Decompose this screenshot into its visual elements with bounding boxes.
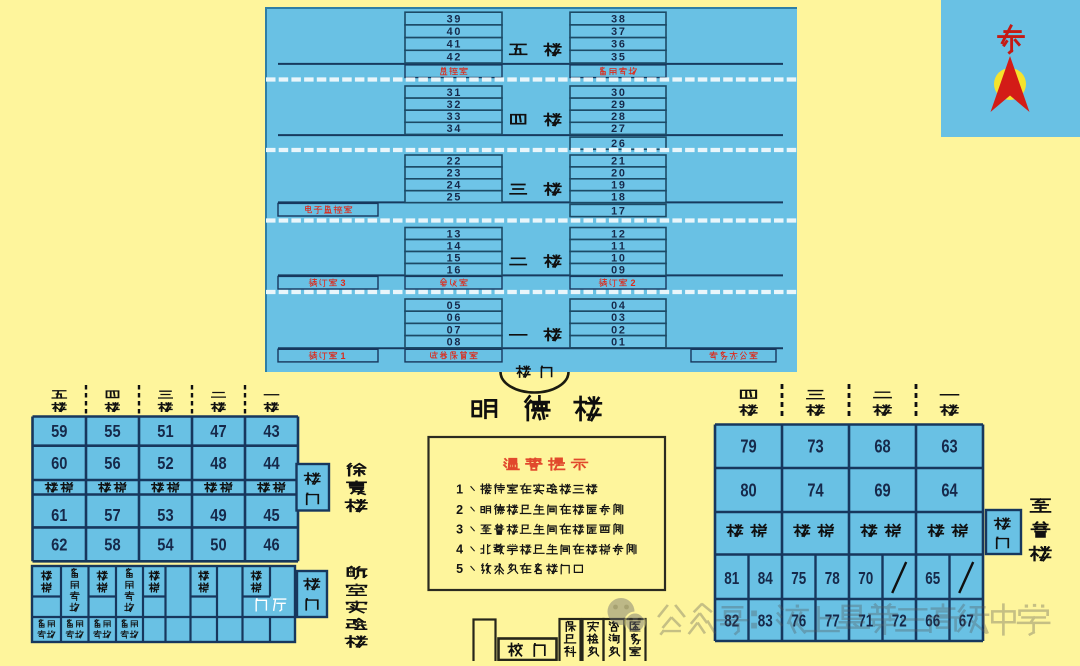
- svg-text:35: 35: [611, 51, 625, 63]
- svg-text:05: 05: [447, 300, 461, 312]
- svg-text:32: 32: [447, 99, 461, 111]
- svg-text:55: 55: [104, 421, 121, 441]
- svg-text:2: 2: [630, 278, 635, 288]
- svg-text:42: 42: [447, 51, 461, 63]
- svg-text:47: 47: [210, 421, 226, 441]
- svg-text:3: 3: [456, 523, 463, 537]
- svg-text:75: 75: [791, 568, 806, 588]
- svg-text:45: 45: [263, 505, 280, 525]
- svg-text:21: 21: [611, 156, 625, 168]
- svg-text:73: 73: [807, 436, 823, 457]
- svg-text:1: 1: [456, 482, 463, 496]
- svg-text:17: 17: [611, 205, 625, 217]
- svg-text:51: 51: [157, 421, 174, 441]
- svg-text:38: 38: [611, 13, 625, 25]
- svg-text:33: 33: [447, 111, 461, 123]
- svg-text:74: 74: [807, 480, 824, 501]
- svg-text:63: 63: [941, 436, 957, 457]
- svg-text:11: 11: [611, 240, 625, 252]
- svg-text:40: 40: [447, 26, 461, 38]
- svg-text:2: 2: [456, 503, 463, 517]
- svg-text:14: 14: [447, 240, 461, 252]
- svg-text:4: 4: [456, 543, 463, 557]
- svg-text:3: 3: [340, 278, 345, 288]
- svg-text:68: 68: [874, 436, 890, 457]
- svg-text:50: 50: [210, 535, 227, 555]
- svg-text:80: 80: [740, 480, 756, 501]
- svg-text:69: 69: [874, 480, 890, 501]
- svg-text:34: 34: [447, 123, 461, 135]
- svg-text:1: 1: [340, 351, 345, 361]
- svg-text:84: 84: [758, 568, 773, 588]
- svg-text:22: 22: [447, 156, 461, 168]
- svg-text:46: 46: [263, 535, 280, 555]
- svg-text:12: 12: [611, 228, 625, 240]
- svg-text:20: 20: [611, 168, 625, 180]
- svg-text:09: 09: [611, 264, 625, 276]
- svg-text:15: 15: [447, 252, 461, 264]
- svg-text:04: 04: [611, 300, 625, 312]
- svg-text:30: 30: [611, 87, 625, 99]
- svg-text:08: 08: [447, 337, 461, 349]
- svg-text:43: 43: [263, 421, 280, 441]
- svg-text:29: 29: [611, 99, 625, 111]
- svg-text:48: 48: [210, 453, 227, 473]
- svg-text:39: 39: [447, 13, 461, 25]
- svg-text:07: 07: [447, 324, 461, 336]
- svg-text:27: 27: [611, 123, 625, 135]
- svg-text:13: 13: [447, 228, 461, 240]
- svg-text:54: 54: [157, 535, 174, 555]
- svg-text:83: 83: [758, 611, 773, 631]
- svg-text:19: 19: [611, 180, 625, 192]
- svg-text:03: 03: [611, 312, 625, 324]
- svg-text:25: 25: [447, 191, 461, 203]
- svg-text:10: 10: [611, 252, 625, 264]
- svg-text:59: 59: [51, 421, 68, 441]
- svg-text:64: 64: [941, 480, 958, 501]
- svg-text:56: 56: [104, 453, 121, 473]
- svg-text:5: 5: [456, 562, 463, 576]
- svg-text:52: 52: [157, 453, 174, 473]
- svg-text:79: 79: [740, 436, 756, 457]
- svg-text:61: 61: [51, 505, 68, 525]
- svg-text:78: 78: [825, 568, 840, 588]
- svg-text:02: 02: [611, 324, 625, 336]
- svg-text:31: 31: [447, 87, 461, 99]
- svg-text:36: 36: [611, 39, 625, 51]
- svg-text:53: 53: [157, 505, 174, 525]
- svg-text:57: 57: [104, 505, 120, 525]
- svg-text:06: 06: [447, 312, 461, 324]
- svg-text:81: 81: [724, 568, 739, 588]
- svg-text:23: 23: [447, 168, 461, 180]
- svg-text:58: 58: [104, 535, 121, 555]
- svg-text:44: 44: [263, 453, 280, 473]
- svg-text:49: 49: [210, 505, 227, 525]
- svg-text:65: 65: [925, 568, 940, 588]
- svg-text:01: 01: [611, 337, 625, 349]
- svg-text:41: 41: [447, 39, 461, 51]
- svg-text:37: 37: [611, 26, 625, 38]
- svg-text:70: 70: [858, 568, 873, 588]
- svg-text:60: 60: [51, 453, 68, 473]
- svg-text:24: 24: [447, 180, 461, 192]
- svg-text:18: 18: [611, 191, 625, 203]
- svg-text:62: 62: [51, 535, 68, 555]
- svg-text:28: 28: [611, 111, 625, 123]
- svg-text:16: 16: [447, 264, 461, 276]
